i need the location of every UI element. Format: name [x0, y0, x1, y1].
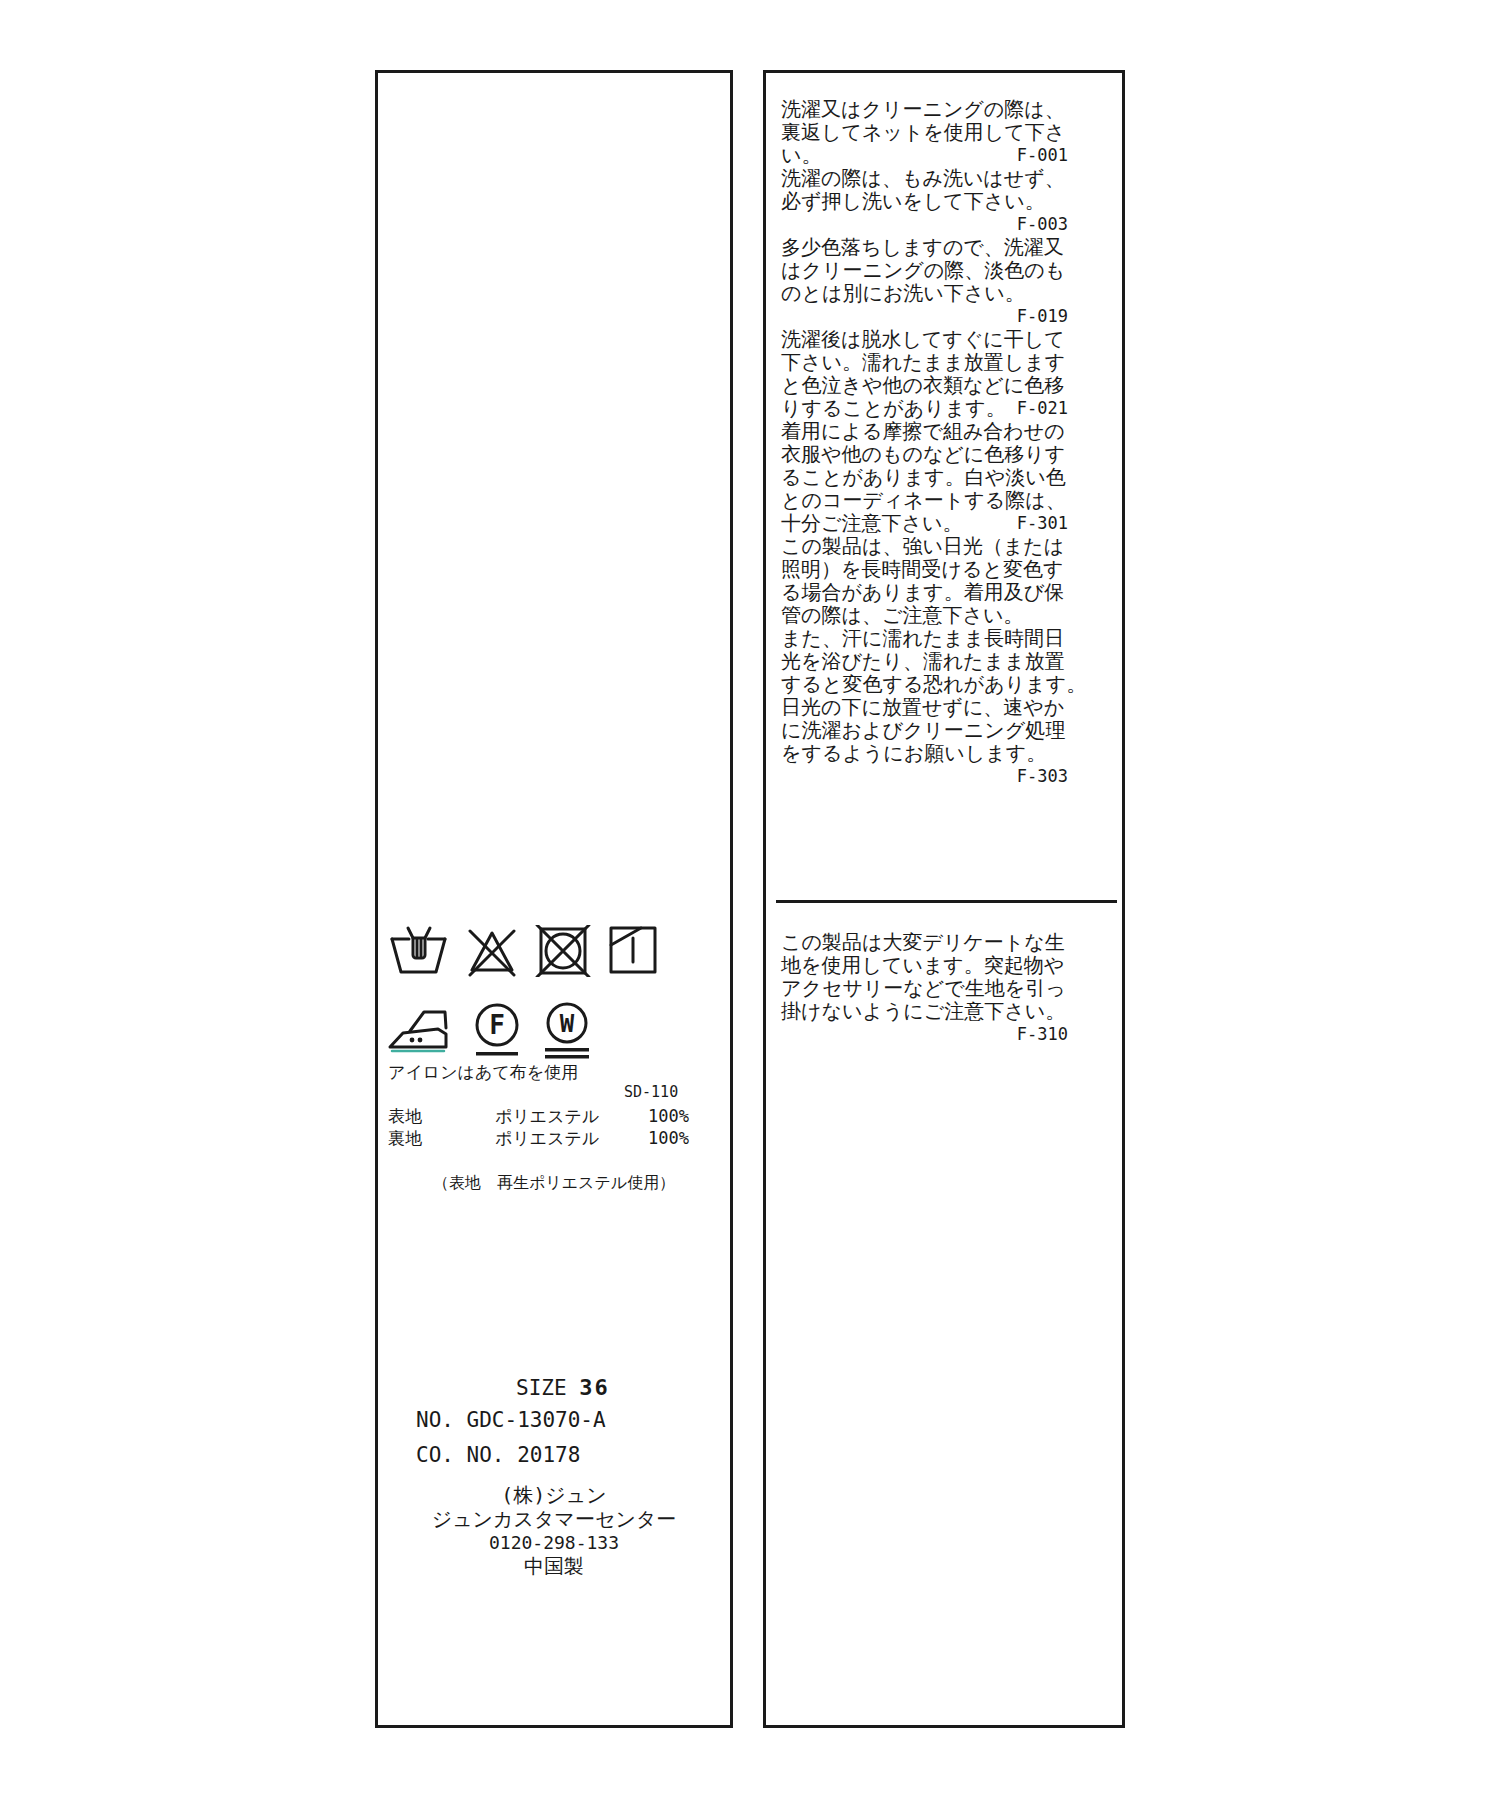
- care-note-line: 必ず押し洗いをして下さい。: [781, 190, 1083, 213]
- care-note-line: 十分ご注意下さい。F-301: [781, 512, 1083, 535]
- care-note-text: をするようにお願いします。: [781, 742, 1046, 765]
- care-notes-section-1: 洗濯又はクリーニングの際は、裏返してネットを使用して下さい。F-001洗濯の際は…: [781, 98, 1083, 788]
- care-note-text: 掛けないようにご注意下さい。: [781, 1000, 1065, 1023]
- composition-table: 表地ポリエステル100%裏地ポリエステル100%: [388, 1105, 720, 1149]
- right-label-panel: 洗濯又はクリーニングの際は、裏返してネットを使用して下さい。F-001洗濯の際は…: [763, 70, 1125, 1728]
- product-id-block: SIZE 36 NO. GDC-13070-A CO. NO. 20178: [416, 1376, 610, 1467]
- care-label-sheet: F W アイロンはあて布を使用 SD-110 表地ポリエステル100%裏地ポリエ…: [0, 0, 1500, 1800]
- care-note-line: い。F-001: [781, 144, 1083, 167]
- care-note-line: アクセサリーなどで生地を引っ: [781, 977, 1083, 1000]
- care-note-code: F-301: [1017, 512, 1068, 535]
- care-note-line: はクリーニングの際、淡色のも: [781, 259, 1083, 282]
- svg-text:F: F: [489, 1010, 505, 1040]
- care-note-line: この製品は大変デリケートな生: [781, 931, 1083, 954]
- care-note-line: 日光の下に放置せずに、速やか: [781, 696, 1083, 719]
- care-note-code: F-003: [1017, 213, 1068, 236]
- care-note-text: りすることがあります。: [781, 397, 1006, 420]
- care-note-text: 照明）を長時間受けると変色す: [781, 558, 1063, 581]
- customer-center: ジュンカスタマーセンター: [378, 1508, 730, 1532]
- care-note-line: F-003: [781, 213, 1083, 236]
- care-note-line: この製品は、強い日光（または: [781, 535, 1083, 558]
- care-note-line: 裏返してネットを使用して下さ: [781, 121, 1083, 144]
- size-label: SIZE: [516, 1376, 567, 1400]
- care-note-text: 多少色落ちしますので、洗濯又: [781, 236, 1064, 259]
- iron-icon: [388, 1006, 452, 1056]
- care-note-text: 十分ご注意下さい。: [781, 512, 962, 535]
- care-note-line: 着用による摩擦で組み合わせの: [781, 420, 1083, 443]
- care-note-code: F-303: [1017, 765, 1068, 788]
- care-note-line: ることがあります。白や淡い色: [781, 466, 1083, 489]
- care-note-text: 着用による摩擦で組み合わせの: [781, 420, 1065, 443]
- care-note-text: 洗濯の際は、もみ洗いはせず、: [781, 167, 1065, 190]
- care-note-line: すると変色する恐れがあります。: [781, 673, 1083, 696]
- care-note-text: また、汗に濡れたまま長時間日: [781, 627, 1064, 650]
- care-note-line: をするようにお願いします。: [781, 742, 1083, 765]
- care-note-text: この製品は、強い日光（または: [781, 535, 1064, 558]
- composition-row: 表地ポリエステル100%: [388, 1105, 720, 1127]
- care-note-line: 下さい。濡れたまま放置します: [781, 351, 1083, 374]
- care-note-line: と色泣きや他の衣類などに色移: [781, 374, 1083, 397]
- care-note-line: 光を浴びたり、濡れたまま放置: [781, 650, 1083, 673]
- care-note-line: のとは別にお洗い下さい。: [781, 282, 1083, 305]
- care-note-line: 衣服や他のものなどに色移りす: [781, 443, 1083, 466]
- care-note-text: 管の際は、ご注意下さい。: [781, 604, 1023, 627]
- phone-number: 0120-298-133: [378, 1531, 730, 1555]
- line-dry-in-shade-icon: [608, 925, 658, 975]
- care-note-text: い。: [781, 144, 821, 167]
- left-label-panel: F W アイロンはあて布を使用 SD-110 表地ポリエステル100%裏地ポリエ…: [375, 70, 733, 1728]
- care-note-line: に洗濯およびクリーニング処理: [781, 719, 1083, 742]
- size-value: 36: [579, 1375, 610, 1400]
- svg-text:W: W: [560, 1010, 575, 1038]
- care-note-text: 地を使用しています。突起物や: [781, 954, 1064, 977]
- composition-material: ポリエステル: [495, 1127, 648, 1149]
- company-name: (株)ジュン: [378, 1484, 730, 1508]
- product-number-line: NO. GDC-13070-A: [416, 1408, 610, 1432]
- care-note-text: 衣服や他のものなどに色移りす: [781, 443, 1065, 466]
- care-symbols-row-1: [388, 925, 658, 977]
- care-note-text: とのコーディネートする際は、: [781, 489, 1066, 512]
- care-note-text: る場合があります。着用及び保: [781, 581, 1064, 604]
- care-note-text: この製品は大変デリケートな生: [781, 931, 1065, 954]
- composition-part: 裏地: [388, 1127, 495, 1149]
- doc-code: SD-110: [624, 1083, 678, 1101]
- care-note-line: F-310: [781, 1023, 1083, 1046]
- care-note-text: 必ず押し洗いをして下さい。: [781, 190, 1045, 213]
- care-note-text: アクセサリーなどで生地を引っ: [781, 977, 1066, 1000]
- care-note-line: また、汗に濡れたまま長時間日: [781, 627, 1083, 650]
- care-notes-section-2: この製品は大変デリケートな生地を使用しています。突起物やアクセサリーなどで生地を…: [781, 931, 1083, 1046]
- composition-pct: 100%: [648, 1105, 720, 1127]
- care-note-line: 地を使用しています。突起物や: [781, 954, 1083, 977]
- care-note-line: 洗濯の際は、もみ洗いはせず、: [781, 167, 1083, 190]
- care-note-line: りすることがあります。F-021: [781, 397, 1083, 420]
- care-note-text: と色泣きや他の衣類などに色移: [781, 374, 1064, 397]
- care-note-text: ることがあります。白や淡い色: [781, 466, 1066, 489]
- care-note-text: に洗濯およびクリーニング処理: [781, 719, 1065, 742]
- care-note-line: F-303: [781, 765, 1083, 788]
- composition-row: 裏地ポリエステル100%: [388, 1127, 720, 1149]
- hand-wash-icon: [388, 925, 449, 977]
- section-divider: [776, 900, 1117, 903]
- care-note-code: F-310: [1017, 1023, 1068, 1046]
- do-not-tumble-dry-icon: [535, 925, 591, 977]
- care-note-text: はクリーニングの際、淡色のも: [781, 259, 1065, 282]
- care-note-line: 洗濯又はクリーニングの際は、: [781, 98, 1083, 121]
- do-not-bleach-icon: [466, 925, 518, 977]
- care-note-text: 洗濯後は脱水してすぐに干して: [781, 328, 1065, 351]
- wet-clean-w-icon: W: [542, 1001, 592, 1061]
- care-note-line: 洗濯後は脱水してすぐに干して: [781, 328, 1083, 351]
- care-note-line: とのコーディネートする際は、: [781, 489, 1083, 512]
- care-note-text: 裏返してネットを使用して下さ: [781, 121, 1065, 144]
- care-note-line: 多少色落ちしますので、洗濯又: [781, 236, 1083, 259]
- maker-block: (株)ジュン ジュンカスタマーセンター 0120-298-133 中国製: [378, 1484, 730, 1578]
- care-note-code: F-021: [1017, 397, 1068, 420]
- composition-material: ポリエステル: [495, 1105, 648, 1127]
- care-note-text: のとは別にお洗い下さい。: [781, 282, 1025, 305]
- dry-clean-f-icon: F: [473, 1001, 521, 1059]
- care-note-text: 洗濯又はクリーニングの際は、: [781, 98, 1065, 121]
- care-symbols-row-2: F W: [388, 1001, 592, 1061]
- country-of-origin: 中国製: [378, 1555, 730, 1579]
- care-note-text: 光を浴びたり、濡れたまま放置: [781, 650, 1065, 673]
- care-note-line: る場合があります。着用及び保: [781, 581, 1083, 604]
- care-note-text: すると変色する恐れがあります。: [781, 673, 1086, 696]
- care-note-text: 日光の下に放置せずに、速やか: [781, 696, 1064, 719]
- company-number-line: CO. NO. 20178: [416, 1443, 610, 1467]
- iron-instruction-note: アイロンはあて布を使用: [388, 1061, 578, 1084]
- size-line: SIZE 36: [416, 1376, 610, 1400]
- care-note-code: F-001: [1017, 144, 1068, 167]
- composition-note: （表地 再生ポリエステル使用）: [378, 1173, 730, 1194]
- care-note-text: 下さい。濡れたまま放置します: [781, 351, 1065, 374]
- care-note-line: 管の際は、ご注意下さい。: [781, 604, 1083, 627]
- care-note-line: 掛けないようにご注意下さい。: [781, 1000, 1083, 1023]
- care-note-code: F-019: [1017, 305, 1068, 328]
- composition-part: 表地: [388, 1105, 495, 1127]
- care-note-line: F-019: [781, 305, 1083, 328]
- composition-pct: 100%: [648, 1127, 720, 1149]
- care-note-line: 照明）を長時間受けると変色す: [781, 558, 1083, 581]
